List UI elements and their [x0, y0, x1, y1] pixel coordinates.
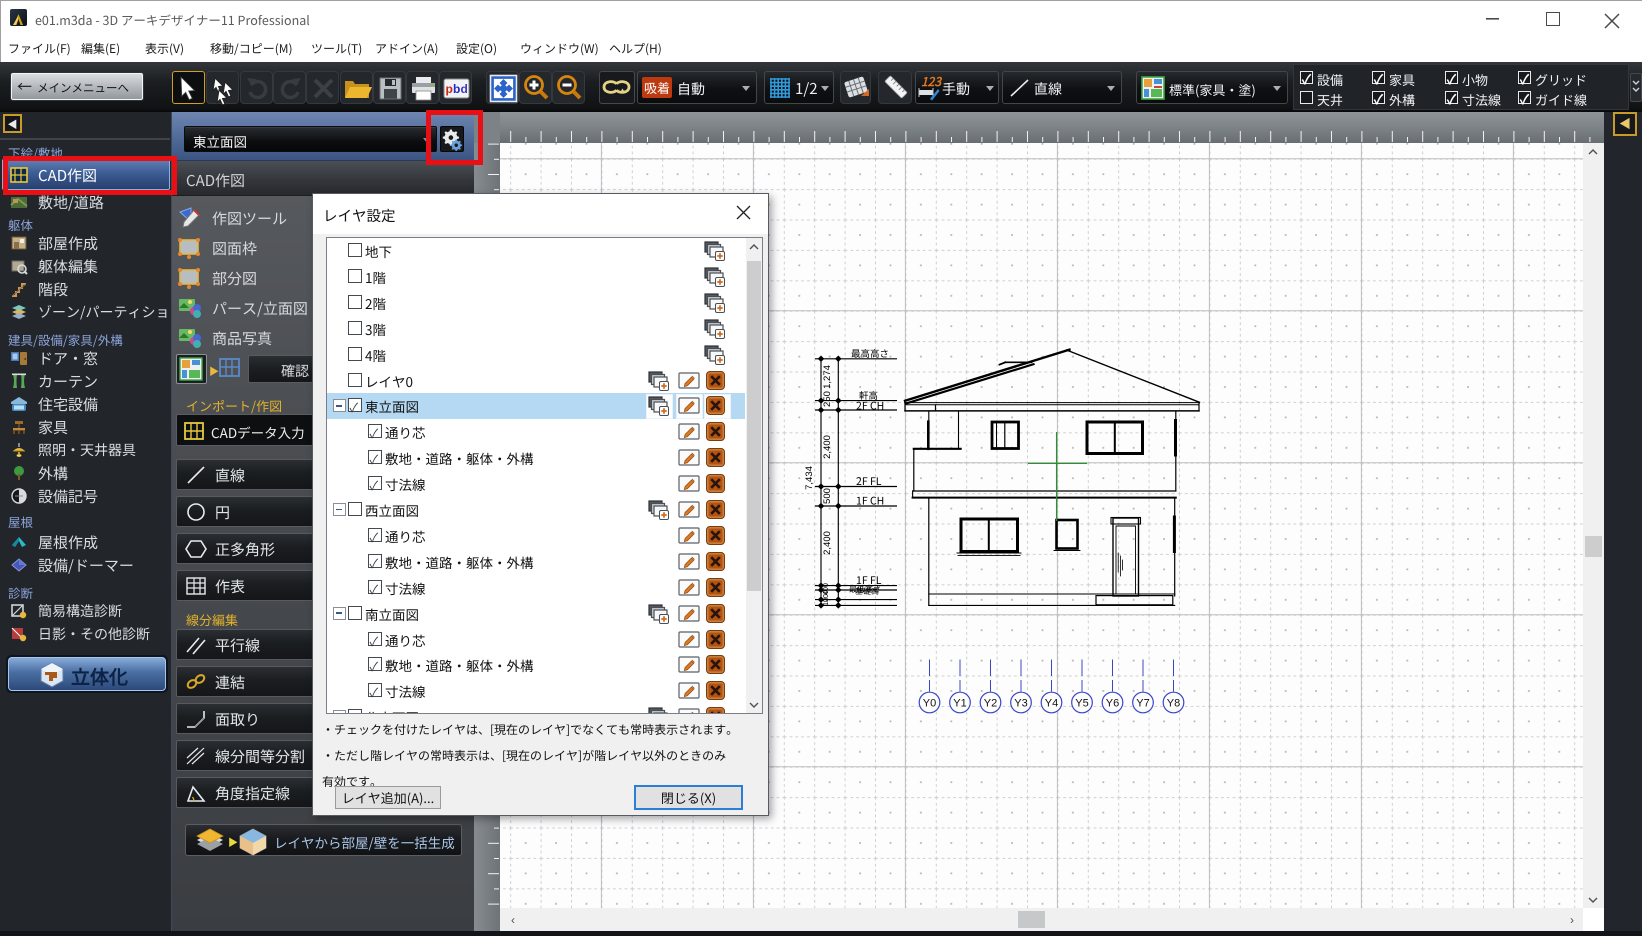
svg-text:1,274: 1,274 [822, 365, 833, 389]
svg-text:Y3: Y3 [1014, 698, 1027, 710]
svg-text:2,400: 2,400 [822, 531, 833, 555]
svg-text:d: d [461, 82, 468, 96]
svg-text:500: 500 [822, 488, 833, 504]
svg-text:Y2: Y2 [984, 698, 997, 710]
svg-text:b: b [453, 82, 460, 96]
svg-text:2F FL: 2F FL [856, 474, 882, 489]
svg-text:250: 250 [822, 391, 833, 407]
svg-text:最高高さ: 最高高さ [851, 346, 889, 360]
svg-text:Y7: Y7 [1136, 698, 1149, 710]
svg-text:Y6: Y6 [1106, 698, 1119, 710]
svg-text:2,400: 2,400 [822, 435, 833, 459]
svg-text:基礎高: 基礎高 [855, 586, 879, 597]
svg-text:Y1: Y1 [953, 698, 966, 710]
svg-text:Y4: Y4 [1045, 698, 1058, 710]
svg-text:p: p [446, 82, 453, 96]
svg-text:2F CH: 2F CH [856, 399, 884, 414]
svg-text:Y5: Y5 [1075, 698, 1088, 710]
svg-text:1F CH: 1F CH [856, 494, 884, 509]
svg-text:Y8: Y8 [1167, 698, 1180, 710]
svg-text:10: 10 [823, 598, 830, 606]
svg-text:7,434: 7,434 [804, 466, 815, 490]
svg-text:Y0: Y0 [923, 698, 936, 710]
